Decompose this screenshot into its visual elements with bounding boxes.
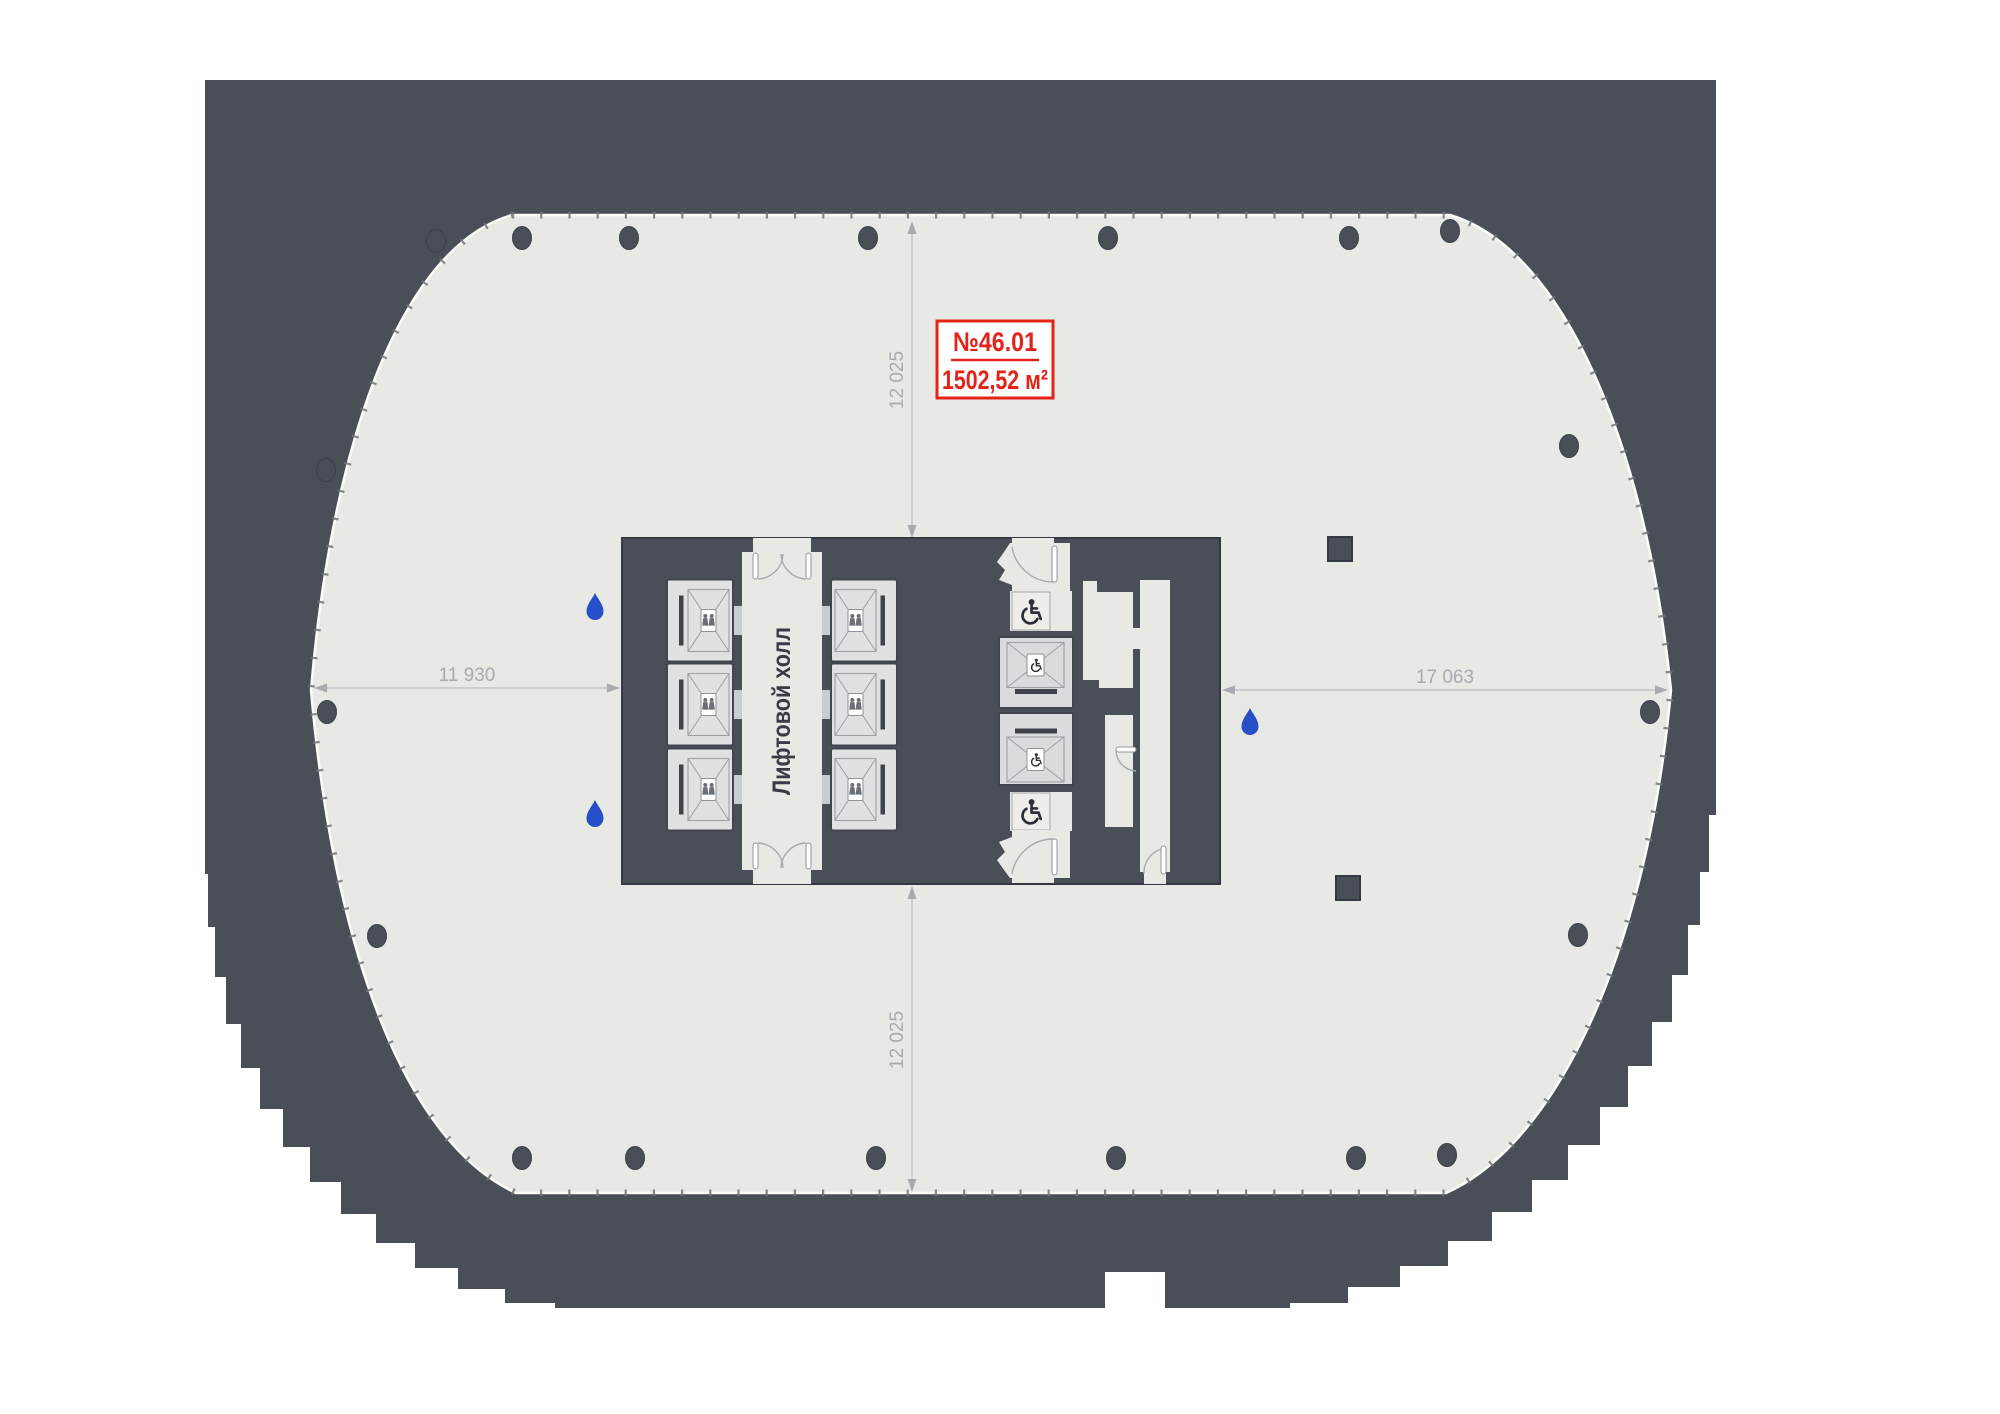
dimension-top-label: 12 025	[887, 351, 908, 409]
passenger-elevator	[667, 749, 733, 831]
service-elevator	[999, 637, 1073, 708]
elevator-door	[822, 606, 831, 635]
door-leaf	[1161, 846, 1166, 874]
door-leaf	[806, 843, 811, 869]
elevator-door	[733, 606, 742, 635]
floor-plan-page: 12 025 12 025 11 930 17 063	[0, 0, 2000, 1414]
column	[620, 227, 639, 250]
column	[318, 701, 337, 724]
corridor-top-opening	[753, 538, 811, 553]
passenger-elevator	[831, 580, 897, 662]
vestibule-top-opening	[1012, 538, 1054, 545]
unit-area: 1502,52 м²	[942, 365, 1048, 395]
door-leaf	[753, 843, 758, 869]
column	[1099, 227, 1118, 250]
dimension-right-label: 17 063	[1416, 667, 1474, 688]
corridor-bottom-opening	[753, 869, 811, 884]
column	[427, 230, 446, 253]
door-leaf	[1052, 546, 1057, 582]
passenger-elevator	[667, 580, 733, 662]
column	[1441, 220, 1460, 243]
lift-hall-label: Лифтовой холл	[768, 627, 796, 795]
service-corridor	[1140, 580, 1170, 872]
door-leaf	[806, 553, 811, 579]
column	[513, 227, 532, 250]
dimension-left-label: 11 930	[439, 665, 496, 686]
unit-number: №46.01	[953, 327, 1037, 357]
passenger-elevator	[667, 664, 733, 746]
door-opening	[1133, 628, 1140, 649]
passenger-elevator	[831, 664, 897, 746]
passenger-elevator	[831, 749, 897, 831]
service-room-upper	[1083, 581, 1133, 688]
service-elevator	[999, 713, 1073, 785]
column	[626, 1147, 645, 1170]
door-leaf	[1052, 839, 1057, 875]
elevator-door	[733, 690, 742, 719]
square-column	[1328, 537, 1352, 561]
column	[1438, 1144, 1457, 1167]
column	[513, 1147, 532, 1170]
elevator-door	[733, 775, 742, 804]
elevator-core: Лифтовой холл	[622, 538, 1220, 884]
column	[859, 227, 878, 250]
elevator-door	[822, 690, 831, 719]
column	[867, 1147, 886, 1170]
square-column	[1336, 876, 1360, 900]
column	[368, 925, 387, 948]
unit-area-label[interactable]: №46.01 1502,52 м²	[937, 321, 1053, 398]
door-leaf	[753, 553, 758, 579]
column	[1107, 1147, 1126, 1170]
column	[1641, 701, 1660, 724]
column	[1560, 435, 1579, 458]
column	[1347, 1147, 1366, 1170]
door-leaf	[1116, 747, 1136, 752]
column	[1569, 924, 1588, 947]
service-room-lower	[1105, 715, 1133, 827]
vestibule-bottom-opening	[1012, 876, 1054, 883]
elevator-door	[822, 775, 831, 804]
dimension-bottom-label: 12 025	[887, 1011, 908, 1069]
column	[1340, 227, 1359, 250]
column	[317, 459, 336, 482]
